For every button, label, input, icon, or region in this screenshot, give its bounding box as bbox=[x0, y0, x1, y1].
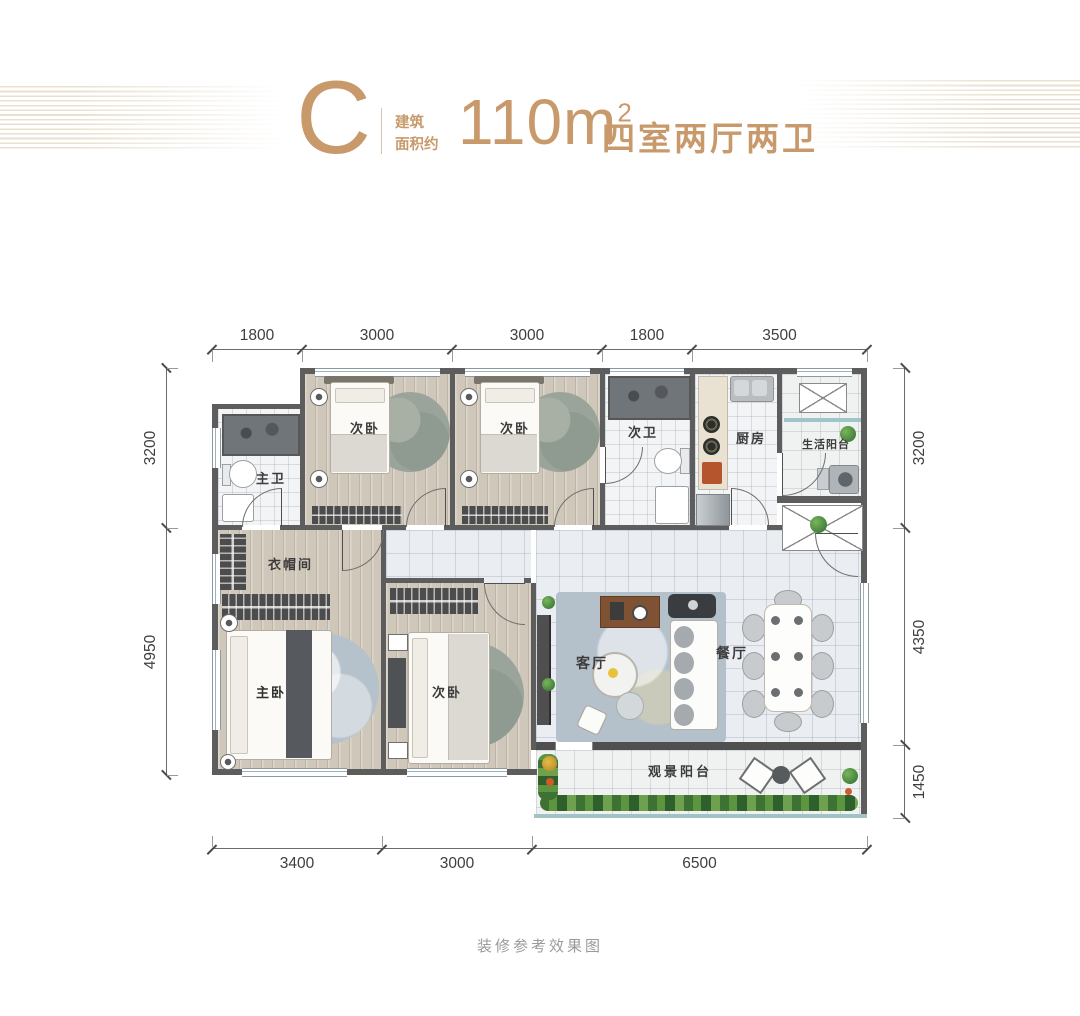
balcony-railing bbox=[534, 814, 867, 818]
wall bbox=[450, 368, 455, 528]
dimension-segment: 3200 bbox=[136, 368, 167, 528]
nightstand bbox=[388, 634, 408, 651]
dimension-segment: 3000 bbox=[452, 310, 602, 350]
plant-icon bbox=[542, 596, 555, 609]
dimension-value: 4350 bbox=[911, 619, 929, 653]
dimension-segment: 4950 bbox=[136, 528, 167, 775]
dimension-value: 3500 bbox=[692, 327, 867, 345]
dining-chair bbox=[774, 712, 802, 732]
sliding-door-opening bbox=[555, 742, 593, 750]
footer-caption: 装修参考效果图 bbox=[0, 935, 1080, 956]
wall bbox=[300, 368, 305, 528]
dining-chair bbox=[810, 690, 834, 718]
area-label-line2: 面积约 bbox=[395, 134, 439, 156]
dining-chair bbox=[810, 614, 834, 642]
room-label-bedroom-top-mid: 次卧 bbox=[500, 422, 530, 435]
dimension-chain-top: 1800 3000 3000 1800 3500 bbox=[212, 310, 867, 350]
place-setting bbox=[794, 652, 803, 661]
window bbox=[407, 768, 507, 777]
sofa-cushion bbox=[674, 626, 694, 648]
room-label-master-bath: 主卫 bbox=[256, 472, 286, 485]
nightstand bbox=[310, 388, 328, 406]
room-label-view-balcony: 观景阳台 bbox=[648, 765, 712, 778]
bed-pillow bbox=[335, 388, 385, 403]
recess-area bbox=[212, 368, 300, 404]
bed-runner bbox=[286, 630, 312, 758]
toilet bbox=[229, 460, 257, 488]
wall bbox=[212, 404, 304, 409]
wall bbox=[212, 525, 242, 530]
wardrobe bbox=[220, 534, 246, 590]
place-setting bbox=[771, 652, 780, 661]
dimension-segment: 3500 bbox=[692, 310, 867, 350]
place-setting bbox=[794, 616, 803, 625]
room-label-service-balcony: 生活阳台 bbox=[802, 440, 850, 451]
balcony-plants bbox=[540, 795, 858, 811]
dimension-value: 6500 bbox=[532, 855, 867, 873]
place-setting bbox=[771, 688, 780, 697]
dining-chair bbox=[742, 614, 766, 642]
dimension-value: 3000 bbox=[382, 855, 532, 873]
dimension-value: 3200 bbox=[142, 431, 160, 465]
sideboard-item bbox=[610, 602, 624, 620]
wall bbox=[381, 530, 386, 775]
room-label-second-bath: 次卫 bbox=[628, 426, 658, 439]
wardrobe bbox=[312, 506, 402, 524]
dimension-value: 3000 bbox=[452, 327, 602, 345]
area-label: 建筑 面积约 bbox=[395, 112, 439, 157]
room-label-bedroom-bottom: 次卧 bbox=[432, 686, 462, 699]
sofa-cushion bbox=[674, 704, 694, 726]
lounge-chair-dot bbox=[688, 600, 698, 610]
dimension-segment: 1800 bbox=[602, 310, 692, 350]
hallway-floor bbox=[386, 530, 531, 583]
sink-basin bbox=[734, 380, 749, 396]
dimension-value: 3000 bbox=[302, 327, 452, 345]
sofa-cushion bbox=[674, 678, 694, 700]
wall bbox=[524, 578, 531, 583]
dimension-value: 1800 bbox=[602, 327, 692, 345]
bed-pillow bbox=[230, 636, 248, 754]
nightstand bbox=[460, 388, 478, 406]
dimension-segment: 6500 bbox=[532, 848, 867, 888]
dimension-segment: 3000 bbox=[302, 310, 452, 350]
tv-console bbox=[537, 615, 551, 725]
room-label-living: 客厅 bbox=[576, 656, 608, 670]
wardrobe bbox=[462, 506, 548, 524]
wall bbox=[531, 583, 536, 750]
area-label-line1: 建筑 bbox=[395, 112, 439, 134]
dimension-value: 3400 bbox=[212, 855, 382, 873]
bed-bench bbox=[388, 658, 406, 728]
window bbox=[212, 650, 221, 730]
window bbox=[212, 428, 221, 468]
wardrobe bbox=[390, 588, 478, 614]
dimension-value: 1800 bbox=[212, 327, 302, 345]
place-setting bbox=[794, 688, 803, 697]
dimension-segment: 4350 bbox=[904, 528, 935, 745]
wall bbox=[777, 368, 782, 453]
washing-machine bbox=[829, 465, 859, 494]
toilet bbox=[654, 448, 682, 474]
wall bbox=[777, 496, 861, 503]
sideboard bbox=[600, 596, 660, 628]
header-divider bbox=[381, 108, 382, 154]
pinstripe-decoration-right bbox=[785, 80, 1080, 150]
nightstand bbox=[220, 754, 236, 770]
flower-icon bbox=[542, 756, 557, 771]
stove-burner bbox=[703, 416, 720, 433]
wall bbox=[280, 525, 342, 530]
side-table bbox=[616, 692, 644, 720]
floor-plan: 主卫 次卧 次卧 次卫 厨房 生活阳台 衣帽间 bbox=[212, 368, 867, 820]
flower-icon bbox=[845, 788, 852, 795]
dimension-chain-left: 3200 4950 bbox=[136, 368, 166, 775]
plant-icon bbox=[842, 768, 858, 784]
shower bbox=[222, 414, 300, 456]
unit-letter: C bbox=[296, 66, 371, 170]
plant-icon bbox=[542, 678, 555, 691]
nightstand bbox=[310, 470, 328, 488]
dimension-segment: 1450 bbox=[904, 745, 935, 818]
sideboard-item bbox=[632, 605, 648, 621]
bed-blanket bbox=[331, 434, 387, 472]
wall bbox=[600, 483, 605, 528]
fridge bbox=[696, 494, 730, 526]
flower-icon bbox=[546, 778, 554, 786]
bed-blanket bbox=[481, 434, 537, 472]
room-label-cloakroom: 衣帽间 bbox=[268, 558, 313, 571]
room-label-dining: 餐厅 bbox=[716, 646, 748, 660]
balcony-table bbox=[772, 766, 790, 784]
window bbox=[797, 368, 852, 377]
dining-chair bbox=[742, 690, 766, 718]
wall bbox=[600, 368, 605, 447]
room-label-bedroom-top-left: 次卧 bbox=[350, 422, 380, 435]
washbasin-cabinet bbox=[655, 486, 689, 524]
dimension-chain-right: 3200 4350 1450 bbox=[904, 368, 934, 818]
dimension-value: 4950 bbox=[142, 634, 160, 668]
wall bbox=[767, 525, 782, 530]
sofa-cushion bbox=[674, 652, 694, 674]
window bbox=[242, 768, 347, 777]
cutting-board bbox=[702, 462, 722, 484]
pinstripe-decoration-left bbox=[0, 86, 295, 150]
dimension-segment: 1800 bbox=[212, 310, 302, 350]
wardrobe bbox=[222, 594, 330, 620]
shower bbox=[608, 376, 691, 420]
nightstand bbox=[388, 742, 408, 759]
coffee-table-decor bbox=[608, 668, 618, 678]
floorplan-page: { "header": { "unit": "C", "area_label_l… bbox=[0, 0, 1080, 1016]
dimension-chain-bottom: 3400 3000 6500 bbox=[212, 848, 867, 888]
wall bbox=[386, 578, 484, 583]
bed-pillow bbox=[485, 388, 535, 403]
equipment-platform bbox=[799, 383, 847, 413]
bed-pillow bbox=[412, 638, 428, 758]
room-label-master-bedroom: 主卧 bbox=[256, 686, 286, 699]
dining-chair bbox=[810, 652, 834, 680]
window bbox=[860, 583, 869, 723]
stove-burner bbox=[703, 438, 720, 455]
sink-basin bbox=[752, 380, 767, 396]
layout-summary: 四室两厅两卫 bbox=[602, 112, 818, 160]
dimension-segment: 3400 bbox=[212, 848, 382, 888]
dimension-segment: 3000 bbox=[382, 848, 532, 888]
nightstand bbox=[220, 614, 238, 632]
plant-icon bbox=[810, 516, 827, 533]
dimension-segment: 3200 bbox=[904, 368, 935, 528]
dimension-value: 1450 bbox=[911, 764, 929, 798]
place-setting bbox=[771, 616, 780, 625]
nightstand bbox=[460, 470, 478, 488]
room-label-kitchen: 厨房 bbox=[736, 432, 766, 445]
wall bbox=[444, 525, 554, 530]
balcony-glass bbox=[784, 418, 861, 422]
dimension-value: 3200 bbox=[911, 431, 929, 465]
